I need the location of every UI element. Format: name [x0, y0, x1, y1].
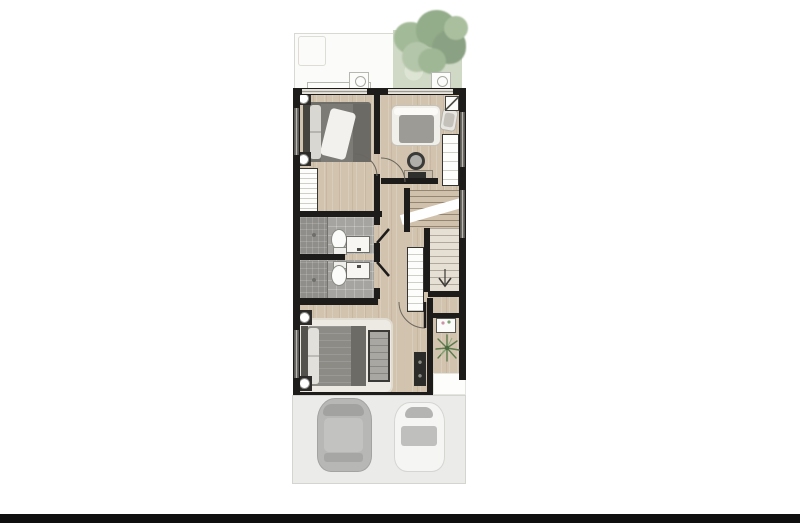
- car-rear-window: [323, 404, 364, 416]
- bedroom3-wardrobe: [442, 134, 459, 186]
- footer-bar: [0, 514, 800, 523]
- entry-floor: [433, 297, 459, 373]
- wall-bedroom-divider-lower: [374, 174, 380, 214]
- chair-cushion: [443, 112, 455, 128]
- linen-cabinet: [407, 247, 424, 312]
- vanity-sink: [346, 236, 370, 253]
- vanity-sink: [346, 262, 370, 279]
- bedroom2-pillows: [310, 105, 321, 159]
- master-headboard: [301, 326, 308, 382]
- stairs-lower-flight: [430, 228, 459, 292]
- window-top-bedroom3: [388, 89, 453, 94]
- ac-unit-icon: [431, 72, 451, 89]
- ac-unit-icon: [349, 72, 369, 89]
- wall-entry-stub: [433, 313, 459, 318]
- car-windshield: [401, 426, 437, 446]
- wall-bedroom2-south: [293, 211, 382, 217]
- bedroom-bench: [368, 330, 390, 382]
- ac-fan-icon: [437, 76, 448, 87]
- car-windshield: [324, 453, 363, 462]
- window-right-stairs: [460, 190, 465, 238]
- table-lamp-icon: [299, 378, 310, 389]
- wall-bath-right-b: [374, 243, 380, 262]
- bedroom3-duvet: [399, 115, 434, 143]
- table-lamp-icon: [299, 312, 310, 323]
- wall-bath-right-a: [374, 217, 380, 225]
- tree-canopy-blob: [418, 48, 446, 74]
- terrace-inner-outline: [298, 36, 326, 66]
- wall-bedroom-divider-upper: [374, 93, 380, 154]
- window-left-master: [294, 330, 299, 378]
- corner-cabinet: [445, 96, 459, 111]
- tree: [388, 8, 470, 82]
- bedroom2-wardrobe: [299, 168, 318, 212]
- wall-stairwell-b: [424, 228, 430, 292]
- wall-stairwell-a: [404, 188, 410, 232]
- wall-master-north: [293, 298, 378, 305]
- bedroom3-bed-pillow: [394, 108, 438, 115]
- bedroom2-duvet-dark: [353, 104, 371, 162]
- car-white: [394, 402, 445, 472]
- car-roof: [324, 418, 363, 452]
- faucet-icon: [357, 248, 361, 251]
- car-gray: [317, 398, 372, 472]
- tree-canopy-blob: [444, 16, 468, 40]
- wall-bath-divider: [293, 254, 345, 260]
- tv-console: [414, 352, 426, 386]
- window-right-bedroom3: [460, 112, 465, 167]
- toilet: [331, 265, 347, 286]
- master-bed-foot-blanket: [351, 326, 366, 386]
- window-top-bedroom2: [302, 89, 367, 94]
- stool: [407, 152, 425, 170]
- faucet-icon: [357, 265, 361, 268]
- ac-fan-icon: [355, 76, 366, 87]
- shower-drain-icon: [312, 278, 316, 282]
- shower-drain-icon: [312, 233, 316, 237]
- entry-console-table: [436, 318, 456, 333]
- car-rear-window: [405, 407, 433, 418]
- wall-bedroom3-south: [381, 178, 438, 184]
- wall-stairs-bottom: [428, 291, 466, 297]
- floor-plan-image: [0, 0, 800, 523]
- window-left-bedroom2: [294, 108, 299, 155]
